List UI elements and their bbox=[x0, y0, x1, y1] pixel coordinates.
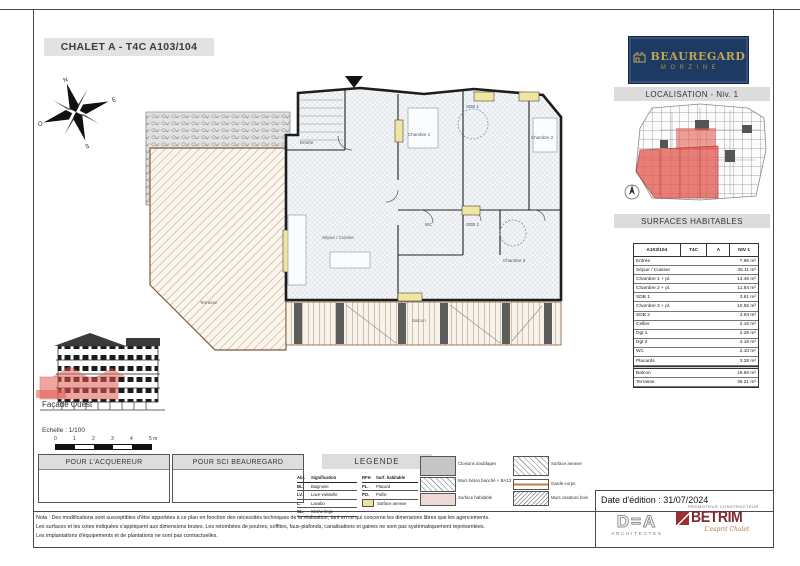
legend-abbr-row: BL.Baignoire bbox=[297, 483, 357, 492]
room-label: Chambre 3 bbox=[503, 258, 525, 263]
legend-swatch-railing bbox=[513, 479, 549, 490]
table-row: SDB 1 3.81 m² bbox=[634, 293, 758, 302]
legend-abbr-row: PO.Poêle bbox=[362, 491, 418, 500]
sci-box-title: POUR SCI BEAUREGARD bbox=[173, 455, 303, 470]
brand-subtitle: MORZINE bbox=[661, 65, 720, 71]
architect-logo: D=A ARCHITECTES bbox=[606, 513, 668, 536]
table-row: SDB 2 3.94 m² bbox=[634, 312, 758, 321]
legend-abbr-table-a: Abr. Signification BL.Baignoire LV.Lave-… bbox=[297, 474, 357, 517]
balcony-deck bbox=[286, 302, 561, 345]
legend-swatch-concrete bbox=[420, 477, 456, 492]
terrace-deck bbox=[150, 148, 286, 350]
edition-date: Date d'édition : 31/07/2024 bbox=[601, 495, 708, 505]
scale-ticks: 012345 m bbox=[54, 436, 168, 442]
table-row: Dgt 2 4.18 m² bbox=[634, 339, 758, 348]
surfaces-rows: Entrée 7.96 m² Séjour / Cuisine 35.11 m²… bbox=[634, 257, 758, 366]
key-plan-drawing bbox=[615, 102, 775, 212]
legend-swatch-partitions bbox=[420, 456, 456, 476]
room-label: SDB 1 bbox=[466, 104, 479, 109]
table-row: WC 2.10 m² bbox=[634, 348, 758, 357]
room-label: SDB 2 bbox=[466, 222, 479, 227]
page-title: CHALET A - T4C A103/104 bbox=[44, 38, 214, 56]
acquirer-signature-box: POUR L'ACQUEREUR bbox=[38, 454, 170, 503]
notes-block: Nota : Des modifications sont susceptibl… bbox=[36, 514, 588, 541]
scale-label: Echelle : 1/100 bbox=[42, 427, 85, 434]
table-row: Entrée 7.96 m² bbox=[634, 257, 758, 266]
svg-text:N: N bbox=[63, 77, 69, 84]
bottom-border bbox=[33, 547, 774, 548]
note-line: Nota : Des modifications sont susceptibl… bbox=[36, 514, 588, 523]
legend-title: LEGENDE bbox=[322, 454, 432, 469]
top-border bbox=[0, 9, 800, 10]
compass-rose-icon: N S E O bbox=[35, 75, 120, 155]
legend-abbr-row: PL.Placard bbox=[362, 483, 418, 492]
table-row: Placards 3.28 m² bbox=[634, 357, 758, 366]
legend-swatch-timber bbox=[513, 491, 549, 506]
room-label: Terrasse bbox=[200, 300, 217, 305]
table-row: Balcon 19.56 m² bbox=[634, 369, 758, 378]
floor-plan-drawing bbox=[140, 70, 580, 380]
surfaces-table-header: A103/104 T4C A NIV 1 bbox=[634, 244, 758, 257]
svg-text:O: O bbox=[37, 121, 44, 128]
plan-sheet: CHALET A - T4C A103/104 N S E O bbox=[0, 0, 800, 566]
room-label: Chambre 1 bbox=[408, 132, 430, 137]
note-line: Les implantations d'équipements et de pl… bbox=[36, 532, 588, 541]
table-row: Terrasse 36.21 m² bbox=[634, 378, 758, 387]
right-border bbox=[773, 9, 774, 548]
mini-compass-icon bbox=[629, 185, 635, 195]
table-row: Chambre 1 + pl. 13.46 m² bbox=[634, 275, 758, 284]
svg-text:S: S bbox=[85, 144, 91, 151]
table-row: Cellier 2.16 m² bbox=[634, 321, 758, 330]
annex-swatch bbox=[362, 499, 374, 507]
svg-text:E: E bbox=[112, 97, 118, 104]
room-label: Chambre 2 bbox=[531, 135, 553, 140]
surfaces-table: A103/104 T4C A NIV 1 Entrée 7.96 m² Séjo… bbox=[633, 243, 759, 378]
legend-annex-swatch-row: Surface annexe bbox=[362, 500, 418, 508]
legend-swatch-annex-surface bbox=[513, 456, 549, 476]
footer-divider bbox=[33, 511, 773, 512]
room-label: Entrée bbox=[300, 140, 313, 145]
brand-logo: BEAUREGARD MORZINE bbox=[628, 36, 749, 84]
table-row: Chambre 3 + pl. 10.55 m² bbox=[634, 302, 758, 311]
room-label: Balcon bbox=[412, 318, 426, 323]
sci-signature-box: POUR SCI BEAUREGARD bbox=[172, 454, 304, 503]
acquirer-box-title: POUR L'ACQUEREUR bbox=[39, 455, 169, 470]
legend-abbr-row: LV.Lave-vaisselle bbox=[297, 491, 357, 500]
scale-bar bbox=[55, 444, 152, 450]
brand-chalet-icon bbox=[632, 50, 647, 63]
table-row: Séjour / Cuisine 35.11 m² bbox=[634, 266, 758, 275]
note-line: Les surfaces et les cotes indiquées s'ap… bbox=[36, 523, 588, 532]
localisation-title: LOCALISATION - Niv. 1 bbox=[614, 87, 770, 101]
legend-abbr-row: L.Lavabo bbox=[297, 500, 357, 509]
surfaces-title: SURFACES HABITABLES bbox=[614, 214, 770, 228]
facade-label: Façade Ouest bbox=[42, 400, 92, 409]
annex-table: Balcon 19.56 m² Terrasse 36.21 m² bbox=[633, 368, 759, 388]
left-border bbox=[33, 9, 34, 548]
datebox-top-line bbox=[595, 490, 773, 491]
legend-swatch-habitable bbox=[420, 493, 456, 506]
developer-logo: PROMOTEUR CONSTRUCTEUR BETRIM L'esprit C… bbox=[676, 505, 771, 533]
betrim-square-icon bbox=[676, 512, 689, 525]
table-row: Dgt 1 2.28 m² bbox=[634, 330, 758, 339]
section-marker-icon bbox=[345, 76, 363, 88]
legend-abbr-table-b: RFH Surf. habitable PL.Placard PO.Poêle … bbox=[362, 474, 418, 507]
table-row: Chambre 2 + pl. 11.84 m² bbox=[634, 284, 758, 293]
room-label: WC bbox=[425, 222, 433, 227]
room-label: Séjour / Cuisine bbox=[322, 235, 354, 240]
brand-name: BEAUREGARD bbox=[651, 50, 746, 63]
